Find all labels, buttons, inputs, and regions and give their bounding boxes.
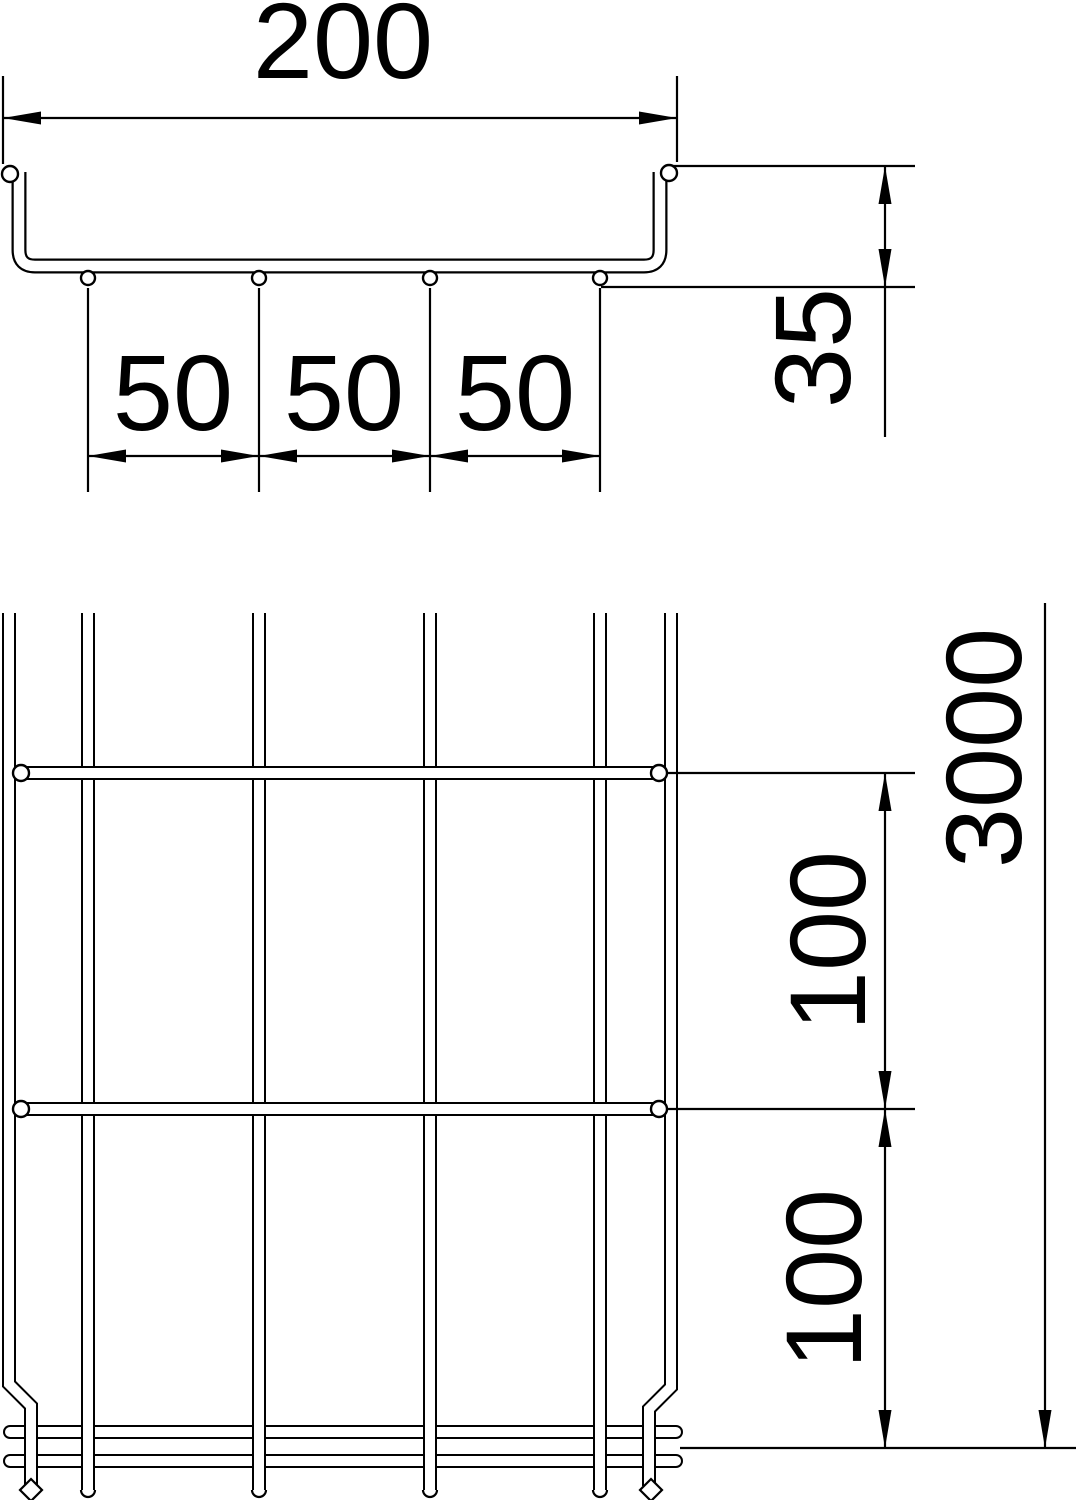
dim-pitch-label-2: 100 [763, 1189, 884, 1369]
rail-tip-left [20, 1479, 42, 1500]
drawing-canvas: 200 [0, 0, 1076, 1500]
longitudinal-wires [81, 613, 607, 1497]
bottom-wire-1 [81, 271, 95, 285]
dim-rung-pitch: 100 100 [668, 773, 1076, 1448]
arrowhead-down [879, 1410, 892, 1448]
bottom-wire-2 [252, 271, 266, 285]
wire-end-cap [423, 1490, 437, 1497]
side-rails [9, 613, 671, 1500]
dim-spacing-label-1: 50 [113, 332, 233, 453]
arrowhead-right [639, 112, 677, 125]
wire-end-cap [593, 1490, 607, 1497]
profile-inner [19, 172, 660, 266]
arrowhead-down [1039, 1410, 1052, 1448]
plan-view: 100 100 3000 [9, 603, 1076, 1500]
dim-side-height-35: 35 [601, 166, 915, 437]
cross-section-view: 200 [2, 0, 915, 492]
dim-length-label: 3000 [923, 628, 1044, 868]
dim-width-label: 200 [253, 0, 433, 101]
rail-inner [9, 613, 31, 1486]
dim-pitch-label-1: 100 [767, 851, 888, 1031]
dim-wire-spacing: 50 50 50 [88, 288, 600, 492]
tray-profile [2, 165, 677, 285]
rung-end-node [13, 1101, 29, 1117]
dim-height-label: 35 [752, 288, 873, 408]
side-wire-top-right [661, 165, 677, 181]
dim-width-200: 200 [3, 0, 677, 164]
rung-end-node [651, 1101, 667, 1117]
arrowhead-up [879, 166, 892, 204]
rung-end-node [651, 765, 667, 781]
arrowhead-up [879, 1109, 892, 1147]
arrowhead-left [3, 112, 41, 125]
profile-outline [19, 172, 660, 266]
drawing-page: 200 [0, 0, 1076, 1500]
end-rungs [10, 1432, 676, 1461]
wire-end-cap [81, 1490, 95, 1497]
wire-end-cap [252, 1490, 266, 1497]
dim-length-3000: 3000 [923, 603, 1052, 1448]
dim-spacing-label-3: 50 [455, 332, 575, 453]
bottom-wire-3 [423, 271, 437, 285]
middle-rungs [13, 765, 667, 1117]
rung-end-node [13, 765, 29, 781]
arrowhead-up [879, 773, 892, 811]
arrowhead-down [879, 249, 892, 287]
bottom-wire-4 [593, 271, 607, 285]
side-wire-top-left [2, 166, 18, 182]
dim-spacing-label-2: 50 [284, 332, 404, 453]
arrowhead-down [879, 1071, 892, 1109]
rail-inner [649, 613, 671, 1486]
